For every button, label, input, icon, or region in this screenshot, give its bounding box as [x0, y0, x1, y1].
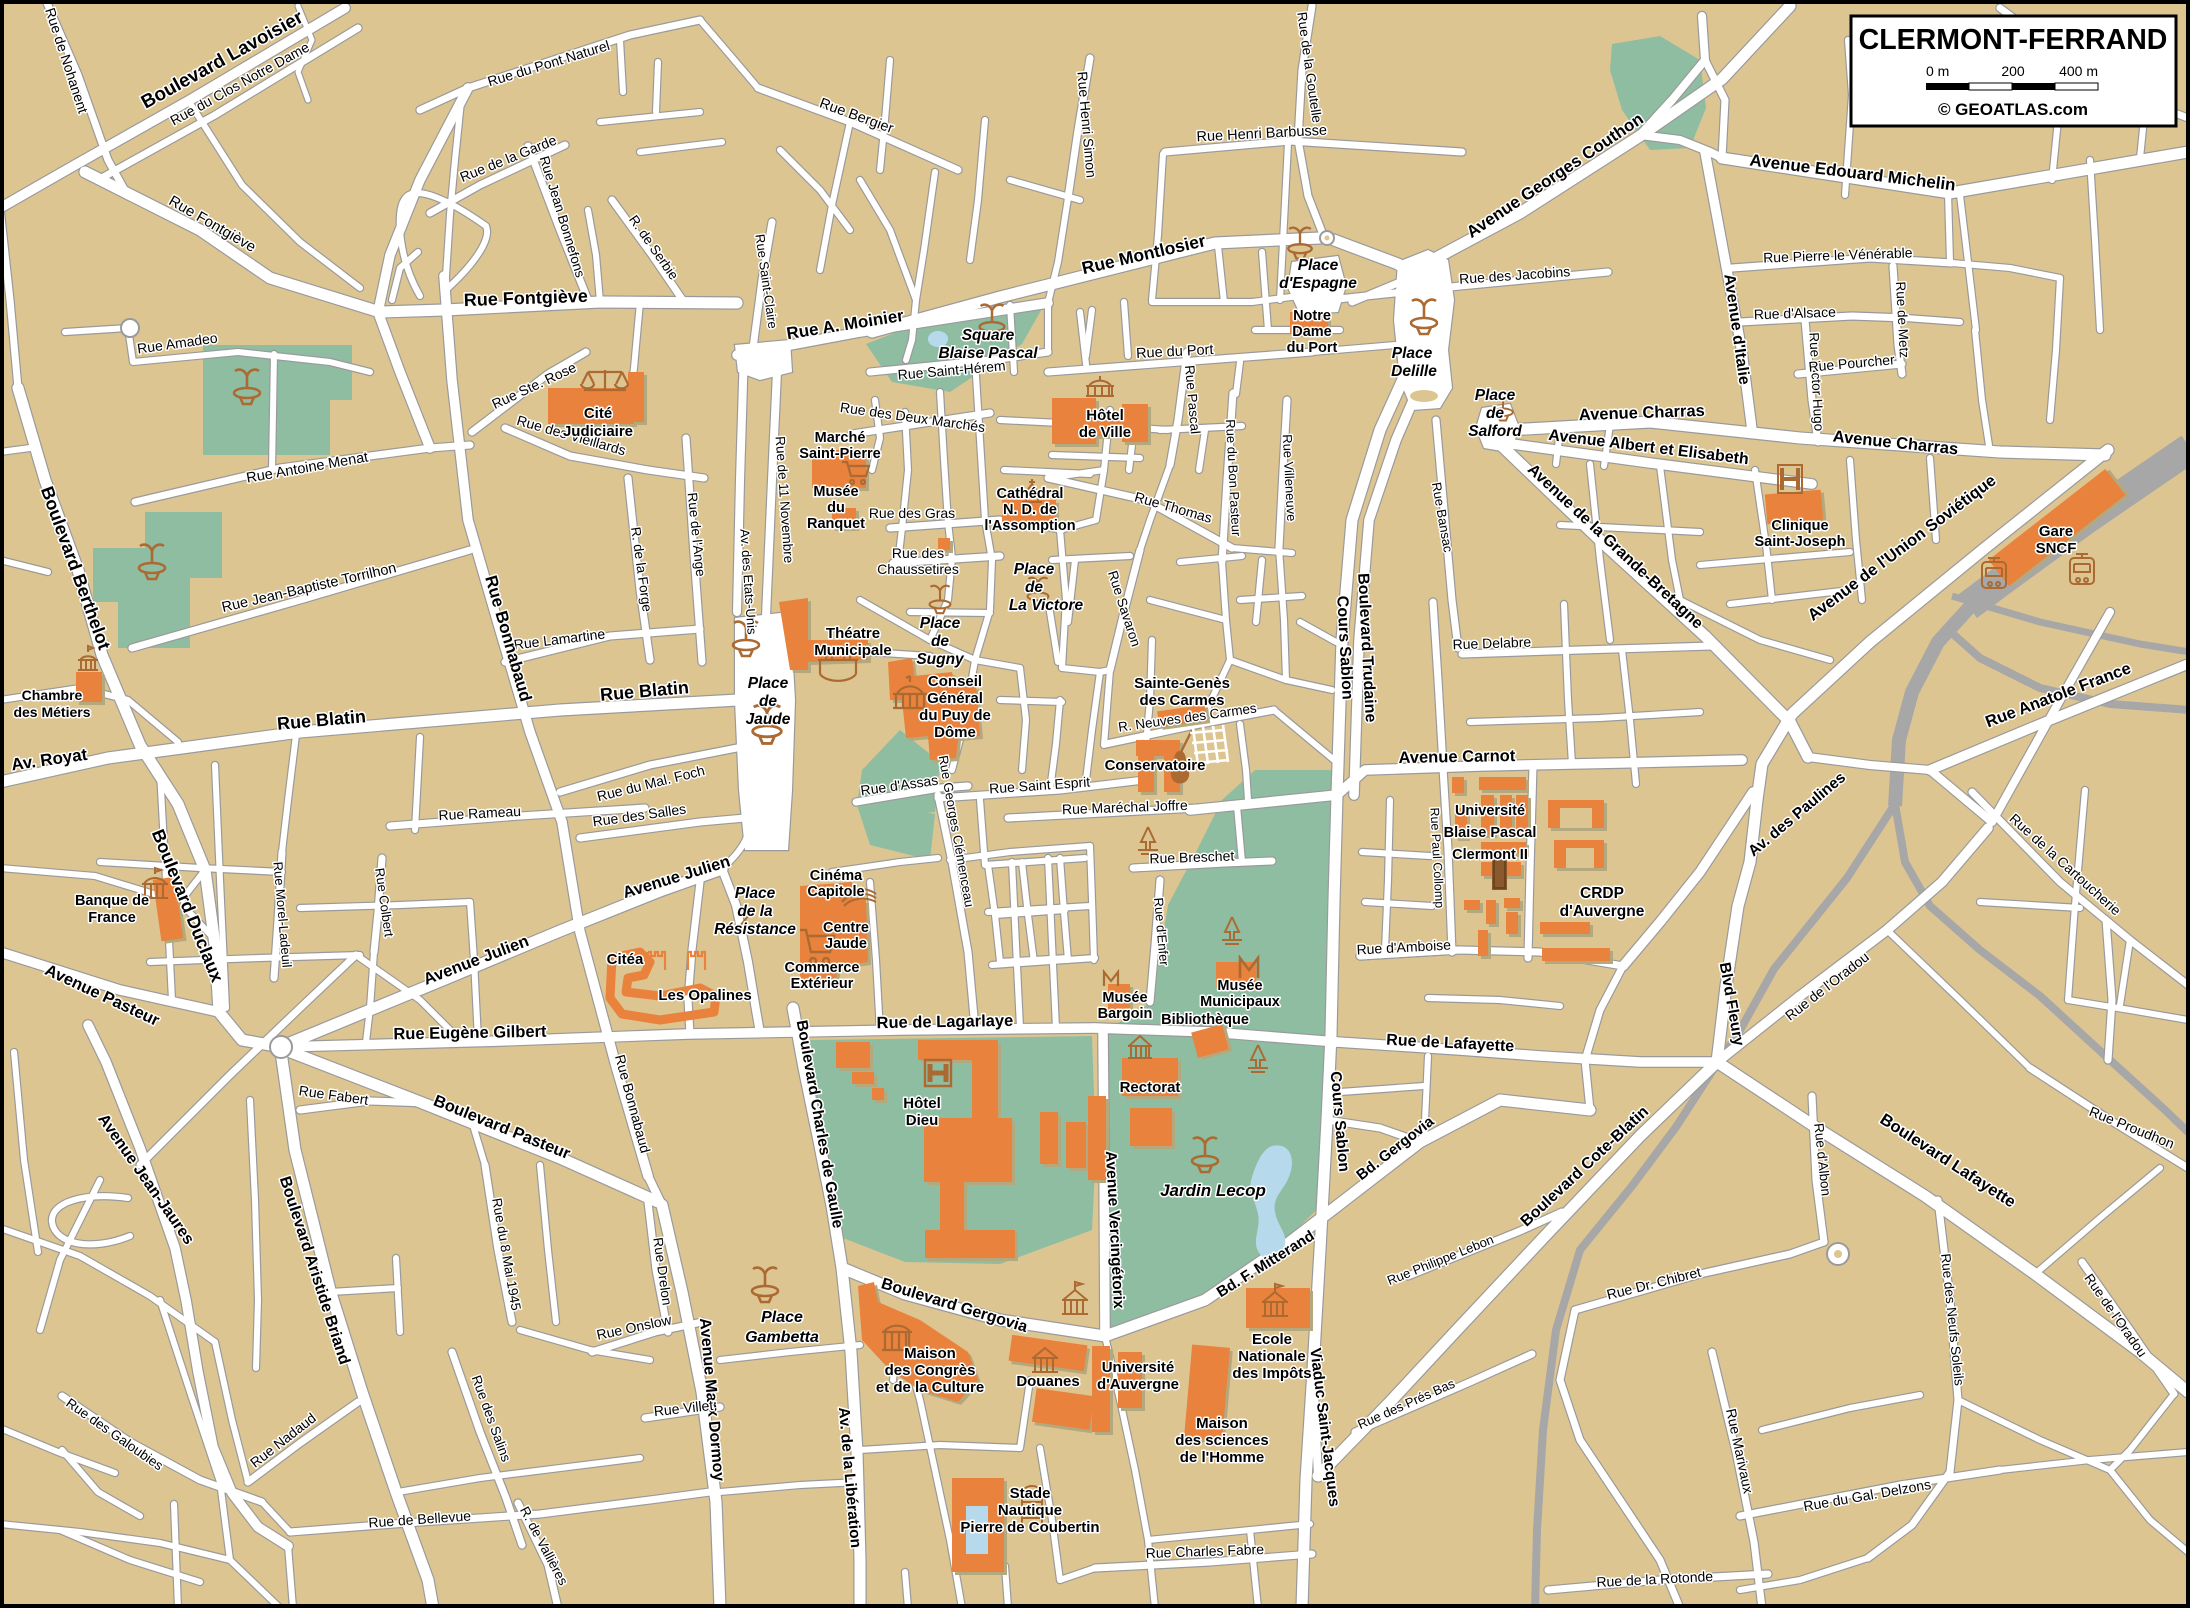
svg-text:N. D. de: N. D. de [1003, 502, 1057, 518]
svg-text:Place: Place [1014, 561, 1055, 578]
svg-text:Maison: Maison [904, 1345, 956, 1362]
svg-text:Maison: Maison [1196, 1415, 1248, 1432]
svg-text:de: de [1486, 405, 1504, 422]
svg-text:Théatre: Théatre [826, 625, 880, 642]
svg-text:Commerce: Commerce [785, 960, 860, 976]
svg-text:du: du [827, 500, 845, 516]
svg-text:Sainte-Genès: Sainte-Genès [1134, 675, 1230, 692]
svg-text:Capitole: Capitole [807, 884, 864, 900]
svg-text:Notre: Notre [1293, 308, 1331, 324]
svg-text:Place: Place [735, 885, 776, 902]
svg-text:Université: Université [1102, 1359, 1175, 1376]
svg-text:Bargoin: Bargoin [1098, 1006, 1153, 1022]
svg-text:Pierre de Coubertin: Pierre de Coubertin [960, 1519, 1099, 1536]
svg-text:Ranquet: Ranquet [807, 516, 865, 532]
svg-text:Rectorat: Rectorat [1120, 1079, 1181, 1096]
svg-text:des Congrès: des Congrès [885, 1362, 976, 1379]
svg-text:Ecole: Ecole [1252, 1331, 1292, 1348]
svg-text:Conservatoire: Conservatoire [1105, 757, 1206, 774]
svg-text:Banque de: Banque de [75, 893, 149, 909]
svg-text:Rue d'Alsace: Rue d'Alsace [1754, 304, 1837, 323]
svg-text:Cinéma: Cinéma [810, 868, 863, 884]
svg-text:Université: Université [1455, 803, 1525, 819]
svg-text:Centre: Centre [823, 920, 869, 936]
svg-text:Place: Place [1475, 387, 1516, 404]
svg-text:Chaussetires: Chaussetires [877, 561, 959, 577]
svg-text:Nationale: Nationale [1238, 1348, 1306, 1365]
svg-text:SNCF: SNCF [2036, 540, 2077, 557]
svg-text:Rue des Gras: Rue des Gras [869, 505, 955, 521]
svg-text:Judiciaire: Judiciaire [563, 423, 633, 440]
svg-text:CRDP: CRDP [1580, 885, 1624, 902]
svg-text:Clermont II: Clermont II [1452, 847, 1528, 863]
svg-text:Place: Place [748, 675, 789, 692]
svg-text:Blaise Pascal: Blaise Pascal [1444, 825, 1537, 841]
svg-text:Rue de Lagarlaye: Rue de Lagarlaye [876, 1012, 1013, 1032]
svg-text:Conseil: Conseil [928, 673, 982, 690]
svg-text:Bibliothèque: Bibliothèque [1161, 1012, 1249, 1028]
svg-text:0 m: 0 m [1926, 63, 1949, 79]
svg-text:Place: Place [920, 615, 961, 632]
svg-text:Nautique: Nautique [998, 1502, 1062, 1519]
svg-text:d'Auvergne: d'Auvergne [1560, 903, 1645, 920]
svg-text:France: France [88, 910, 136, 926]
svg-text:d'Auvergne: d'Auvergne [1097, 1376, 1179, 1393]
svg-text:des Impôts: des Impôts [1232, 1365, 1311, 1382]
svg-text:des sciences: des sciences [1175, 1432, 1268, 1449]
svg-text:Avenue Carnot: Avenue Carnot [1398, 747, 1516, 767]
svg-text:Résistance: Résistance [714, 921, 796, 938]
svg-text:Dame: Dame [1292, 324, 1332, 340]
svg-text:La Victore: La Victore [1009, 597, 1084, 614]
svg-text:de: de [759, 693, 777, 710]
svg-text:Place: Place [1298, 257, 1339, 274]
svg-text:Jaude: Jaude [746, 711, 791, 728]
svg-text:Rue Breschet: Rue Breschet [1149, 848, 1234, 867]
svg-text:Hôtel: Hôtel [903, 1095, 941, 1112]
svg-text:du Puy de: du Puy de [919, 707, 991, 724]
svg-text:Gare: Gare [2039, 523, 2073, 540]
svg-text:Douanes: Douanes [1016, 1373, 1079, 1390]
svg-text:Gambetta: Gambetta [745, 1329, 819, 1346]
svg-text:Salford: Salford [1468, 423, 1522, 440]
svg-text:Jardin Lecop: Jardin Lecop [1160, 1181, 1266, 1200]
svg-text:Hôtel: Hôtel [1086, 407, 1124, 424]
svg-text:de l'Homme: de l'Homme [1180, 1449, 1264, 1466]
svg-text:Cité: Cité [584, 405, 612, 422]
svg-text:Jaude: Jaude [825, 936, 867, 952]
svg-text:200: 200 [2001, 63, 2025, 79]
svg-text:Musée: Musée [1102, 990, 1147, 1006]
svg-text:Dôme: Dôme [934, 724, 976, 741]
svg-text:Général: Général [927, 690, 983, 707]
svg-text:d'Espagne: d'Espagne [1279, 275, 1357, 292]
svg-text:et de la Culture: et de la Culture [876, 1379, 984, 1396]
svg-text:l'Assomption: l'Assomption [984, 518, 1075, 534]
svg-text:de Ville: de Ville [1079, 424, 1131, 441]
svg-text:Cathédral: Cathédral [997, 486, 1064, 502]
svg-text:© GEOATLAS.com: © GEOATLAS.com [1938, 100, 2088, 119]
svg-text:de la: de la [737, 903, 773, 920]
svg-text:Dieu: Dieu [906, 1112, 939, 1129]
svg-text:Square: Square [962, 327, 1015, 344]
svg-text:Citéa: Citéa [607, 951, 644, 968]
svg-text:Extérieur: Extérieur [791, 976, 854, 992]
svg-text:Rue des: Rue des [892, 545, 944, 561]
svg-text:Rue Delabre: Rue Delabre [1452, 634, 1531, 653]
svg-text:Delille: Delille [1391, 363, 1437, 380]
svg-text:Clinique: Clinique [1771, 518, 1828, 534]
svg-text:Municipaux: Municipaux [1200, 994, 1280, 1010]
svg-text:Musée: Musée [1217, 978, 1262, 994]
svg-text:CLERMONT-FERRAND: CLERMONT-FERRAND [1859, 24, 2168, 56]
svg-text:Place: Place [761, 1309, 803, 1326]
svg-text:Municipale: Municipale [814, 642, 892, 659]
svg-text:400 m: 400 m [2059, 63, 2098, 79]
svg-text:Stade: Stade [1010, 1485, 1051, 1502]
svg-text:Rue Eugène Gilbert: Rue Eugène Gilbert [393, 1023, 547, 1044]
svg-text:Saint-Joseph: Saint-Joseph [1754, 534, 1845, 550]
svg-text:Les Opalines: Les Opalines [658, 987, 751, 1004]
svg-text:Place: Place [1392, 345, 1433, 362]
svg-text:de: de [931, 633, 949, 650]
svg-text:des Métiers: des Métiers [13, 704, 90, 720]
svg-text:Chambre: Chambre [22, 687, 83, 703]
svg-text:Sugny: Sugny [916, 651, 965, 668]
svg-text:de: de [1025, 579, 1043, 596]
svg-text:Musée: Musée [813, 484, 858, 500]
svg-text:Saint-Pierre: Saint-Pierre [799, 446, 880, 462]
svg-text:Marché: Marché [815, 430, 866, 446]
svg-text:du Port: du Port [1287, 340, 1338, 356]
